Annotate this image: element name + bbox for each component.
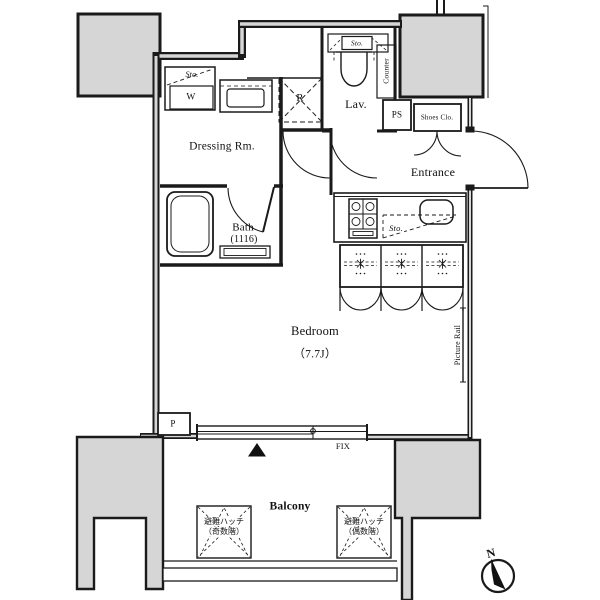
grill — [353, 232, 373, 236]
balcony-right-structure — [395, 440, 480, 600]
door-arcs — [228, 131, 528, 232]
pillar-top-right — [400, 0, 488, 98]
refrigerator-label: R — [296, 94, 303, 105]
lav-door-arc — [330, 131, 377, 178]
storage-label-lav: Sto. — [351, 39, 363, 47]
bath-size-label: (1116) — [230, 235, 257, 245]
ps-label: PS — [392, 111, 402, 120]
balcony-window — [197, 424, 367, 441]
vanity — [220, 80, 272, 112]
hanger-marks — [357, 259, 446, 269]
pipe-lines — [437, 0, 444, 14]
storage-label-kitchen: Sto. — [388, 224, 404, 233]
bath-ledge — [220, 246, 270, 258]
lav-label: Lav. — [345, 98, 367, 110]
bathtub — [167, 192, 213, 256]
pillar-top-left — [78, 14, 160, 96]
escape-hatch-even-label: 避難ハッチ （偶数階） — [337, 517, 391, 537]
closet-door-arcs — [340, 287, 463, 310]
escape-hatch-odd-label: 避難ハッチ （奇数階） — [197, 517, 251, 537]
floorplan: Sto. W Dressing Rm. Bath (1116) R Sto. L… — [0, 0, 600, 600]
compass — [482, 559, 514, 593]
washer-label: W — [186, 93, 195, 103]
entrance-door-arc — [471, 131, 528, 188]
bath-door-leaf — [263, 187, 274, 232]
fix-label: FIX — [336, 442, 350, 451]
balcony-left-structure — [77, 437, 163, 589]
hall-door-arc — [283, 131, 330, 178]
bedroom-size-label: （7.7J） — [293, 349, 336, 361]
storage-label-washer: Sto. — [185, 71, 198, 79]
bedroom-label: Bedroom — [291, 325, 339, 338]
door-jamb-top — [466, 127, 474, 132]
shoes-closet-label: Shoes Clo. — [421, 115, 453, 122]
p-label: P — [170, 420, 175, 429]
door-jamb-bottom — [466, 185, 474, 190]
bath-label: Bath — [232, 223, 254, 234]
counter-label: Counter — [382, 58, 390, 84]
entrance-label: Entrance — [411, 166, 455, 178]
toilet — [334, 52, 374, 86]
kitchen-counter — [334, 193, 466, 242]
orientation-triangle — [248, 443, 266, 457]
dressing-room-label: Dressing Rm. — [189, 141, 255, 153]
closet — [340, 245, 463, 311]
shoes-closet-doors — [414, 131, 461, 156]
sink — [420, 200, 453, 224]
balcony-railing — [163, 561, 397, 581]
balcony-label: Balcony — [269, 501, 310, 513]
picture-rail-label: Picture Rail — [454, 325, 462, 365]
